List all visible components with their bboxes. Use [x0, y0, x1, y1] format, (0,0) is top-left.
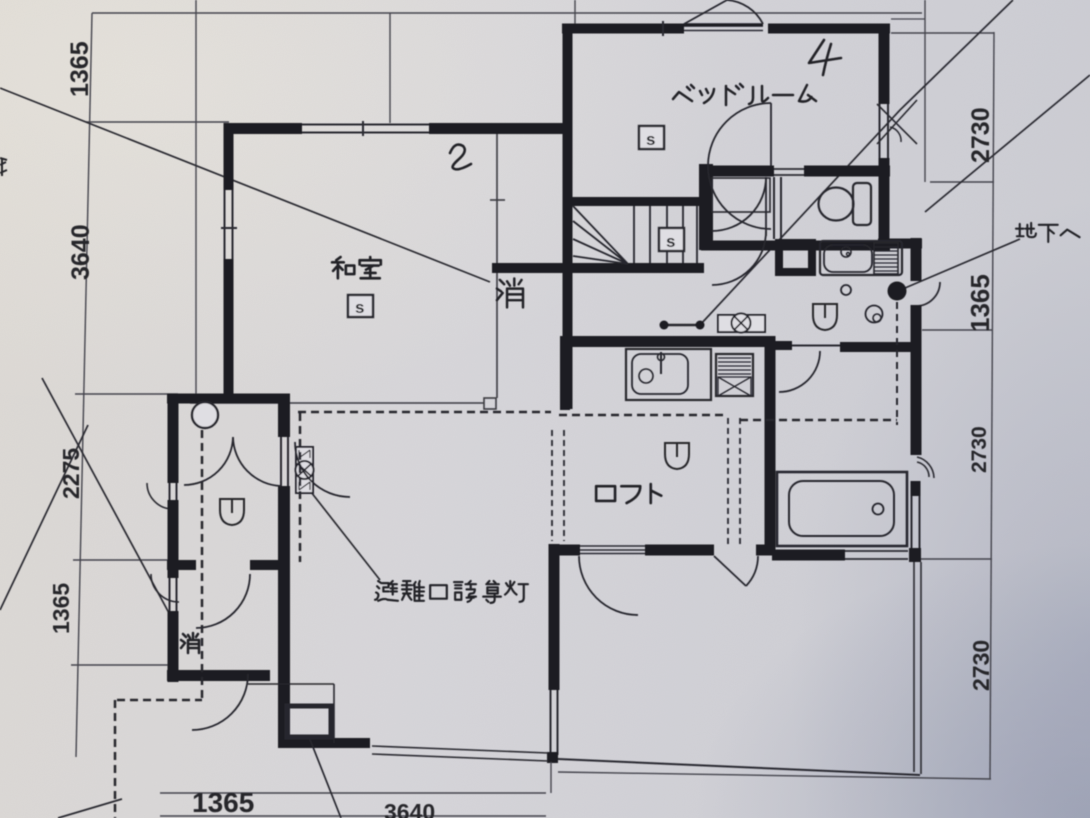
svg-text:s: s [355, 298, 364, 317]
svg-text:2730: 2730 [967, 107, 995, 163]
svg-text:3640: 3640 [67, 224, 95, 280]
svg-text:2730: 2730 [968, 640, 994, 691]
svg-text:s: s [646, 130, 655, 149]
svg-text:1365: 1365 [192, 787, 254, 818]
svg-text:1365: 1365 [66, 41, 94, 97]
svg-text:1365: 1365 [48, 583, 74, 634]
svg-text:2275: 2275 [58, 448, 84, 499]
svg-text:3640: 3640 [384, 799, 435, 818]
svg-text:1365: 1365 [965, 274, 995, 332]
svg-text:s: s [666, 232, 675, 251]
svg-text:2730: 2730 [968, 426, 991, 473]
